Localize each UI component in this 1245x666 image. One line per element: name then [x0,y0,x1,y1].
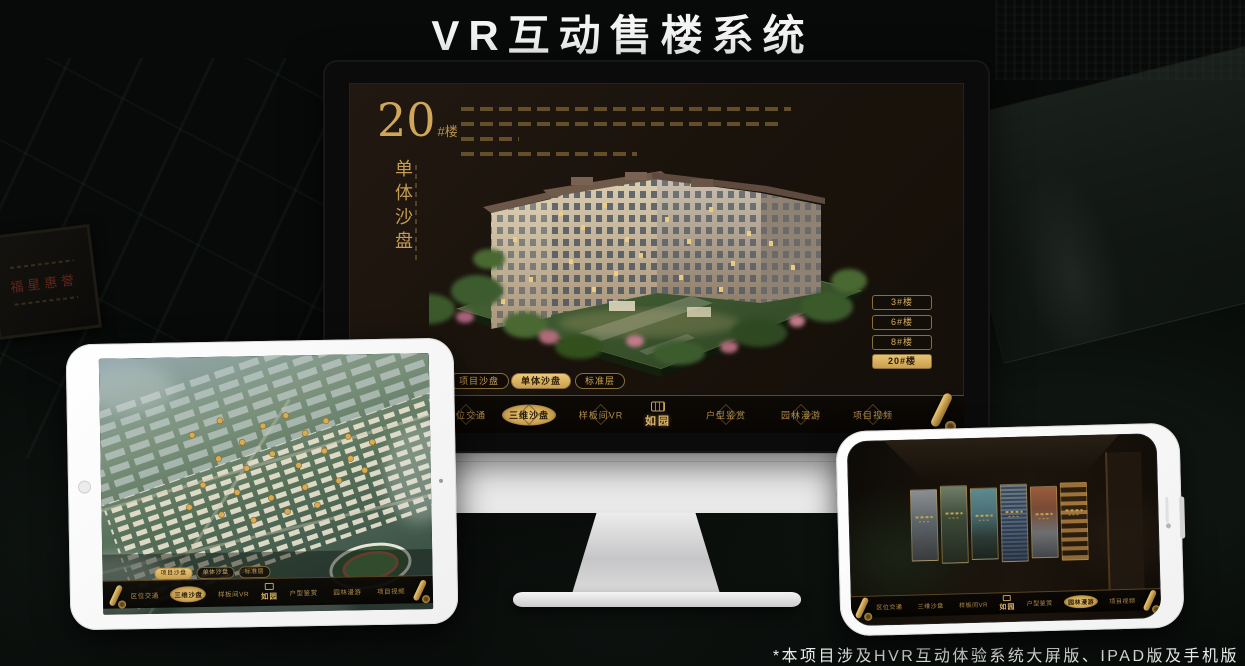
tablet-tab-single-sandtable[interactable]: 单体沙盘 [196,566,234,579]
footnote-text: *本项目涉及HVR互动体验系统大屏版、IPAD版及手机版 [773,642,1239,666]
phone-nav-item-garden-tour[interactable]: 园林漫游 [1064,595,1098,609]
logo-emblem-icon [651,401,665,411]
building-button-8[interactable]: 8#楼 [872,335,932,350]
scroll-icon[interactable] [417,579,423,601]
tab-project-sandtable[interactable]: 项目沙盘 [449,373,509,389]
tablet-nav-item-location[interactable]: 区位交通 [127,586,163,603]
logo-emblem-icon [265,583,274,590]
phone-nav-item-showroom-vr[interactable]: 样板间VR [955,598,992,612]
section-vertical-title: 单体沙盘 [389,159,415,255]
tablet-nav-item-project-video[interactable]: 项目视频 [373,582,409,599]
tablet-navbar: 区位交通 三维沙盘 样板间VR 如园 户型鉴赏 园林漫游 项目视频 [103,575,433,609]
poster-canvas: 福星惠誉 VR互动售楼系统 20#楼 单体沙盘 [0,0,1245,666]
phone-side-button [1179,496,1185,538]
nav-item-3d-sandtable[interactable]: 三维沙盘 [502,404,556,425]
tablet-nav-item-showroom-vr[interactable]: 样板间VR [214,585,253,602]
diamond-frame-icon [455,404,476,425]
phone-nav-item-3d-sandtable[interactable]: 三维沙盘 [914,599,948,613]
nav-item-garden-tour[interactable]: 园林漫游 [774,404,828,425]
logo-ruyuan[interactable]: 如园 [645,401,671,428]
phone-logo-ruyuan[interactable]: 如园 [999,595,1015,612]
gallery-card[interactable] [910,489,939,562]
nav-item-showroom-vr[interactable]: 样板间VR [572,404,631,425]
scroll-icon[interactable] [859,596,866,618]
diamond-frame-icon [590,404,611,425]
gallery-card[interactable] [940,485,969,564]
tablet-device: 项目沙盘 单体沙盘 标准层 区位交通 三维沙盘 样板间VR 如园 户型鉴赏 园林… [66,338,459,631]
diamond-frame-icon [518,404,539,425]
tablet-nav-item-3d-sandtable[interactable]: 三维沙盘 [170,585,206,602]
gallery-card[interactable] [1000,484,1029,563]
plaque-calligraphy-text: 福星惠誉 [9,268,79,295]
monitor-base [513,592,801,607]
page-title: VR互动售楼系统 [0,2,1245,63]
nav-item-project-video[interactable]: 项目视频 [846,404,900,425]
phone-nav-item-floorplans[interactable]: 户型鉴赏 [1023,596,1057,610]
logo-emblem-icon [1003,595,1011,601]
building-button-6[interactable]: 6#楼 [872,315,932,330]
diamond-frame-icon [790,404,811,425]
phone-device: 区位交通 三维沙盘 样板间VR 如园 户型鉴赏 园林漫游 项目视频 [835,423,1184,637]
phone-screen: 区位交通 三维沙盘 样板间VR 如园 户型鉴赏 园林漫游 项目视频 [847,433,1162,626]
tablet-tab-standard-floor[interactable]: 标准层 [238,566,270,579]
tablet-screen: 项目沙盘 单体沙盘 标准层 区位交通 三维沙盘 样板间VR 如园 户型鉴赏 园林… [99,353,433,615]
phone-nav-item-project-video[interactable]: 项目视频 [1105,594,1139,608]
gallery-card[interactable] [1030,486,1059,559]
plaque-small-text-line [10,259,74,269]
tablet-tab-project-sandtable[interactable]: 项目沙盘 [154,567,192,580]
scroll-icon[interactable] [937,392,946,428]
interior-doorframe-render [1105,452,1145,605]
gallery-cards [910,485,1089,565]
building-number: 20 [377,97,436,143]
tablet-home-button [78,480,91,493]
building-button-20[interactable]: 20#楼 [872,354,932,369]
vertical-title-rule [415,165,417,261]
diamond-frame-icon [715,404,736,425]
monitor-stand [571,513,721,597]
tab-single-sandtable[interactable]: 单体沙盘 [511,373,571,389]
background-award-plaque: 福星惠誉 [0,224,102,340]
tablet-nav-item-garden-tour[interactable]: 园林漫游 [329,583,365,600]
phone-navbar: 区位交通 三维沙盘 样板间VR 如园 户型鉴赏 园林漫游 项目视频 [851,588,1161,618]
phone-speaker-icon [1165,497,1169,523]
building-render [429,141,879,386]
building-button-3[interactable]: 3#楼 [872,295,932,310]
tab-standard-floor[interactable]: 标准层 [575,373,625,389]
diamond-frame-icon [862,404,883,425]
gallery-card[interactable] [970,487,999,560]
building-number-suffix: #楼 [438,121,458,140]
tablet-camera-icon [439,479,443,483]
gallery-card[interactable] [1060,482,1089,561]
scroll-icon[interactable] [113,584,119,606]
phone-camera-icon [1166,523,1171,528]
plaque-small-text-line [14,295,78,305]
tablet-nav-item-floorplans[interactable]: 户型鉴赏 [285,583,321,600]
building-headline: 20#楼 [377,97,458,143]
nav-item-floorplans[interactable]: 户型鉴赏 [699,404,753,425]
scroll-icon[interactable] [1147,589,1154,611]
phone-nav-item-location[interactable]: 区位交通 [872,600,906,614]
tablet-logo-ruyuan[interactable]: 如园 [261,583,278,602]
